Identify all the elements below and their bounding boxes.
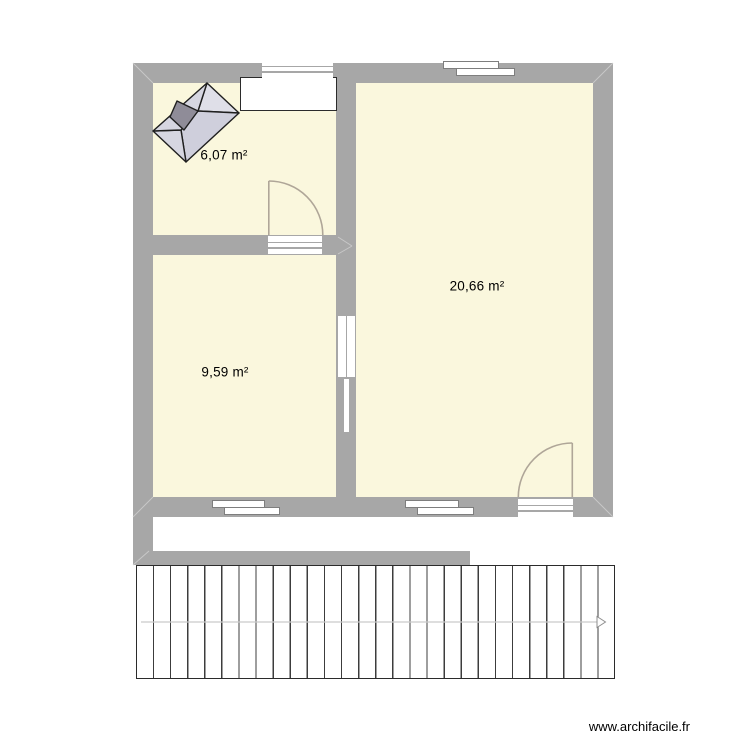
stairs[interactable] <box>136 565 615 679</box>
wall-left[interactable] <box>133 63 153 517</box>
plan-canvas: 6,07 m² 9,59 m² 20,66 m² <box>0 0 750 750</box>
sliding-window-bottom-room2[interactable] <box>212 499 281 517</box>
room-1-area-label: 6,07 m² <box>200 148 247 163</box>
room-2-area-label: 9,59 m² <box>201 365 248 380</box>
sliding-door-panel[interactable] <box>344 379 349 432</box>
window-panel <box>456 68 515 76</box>
furniture-rect[interactable] <box>240 77 337 111</box>
window-panel <box>224 507 280 515</box>
window-panel <box>417 507 474 515</box>
room-3-area-label: 20,66 m² <box>450 279 505 294</box>
door-opening-room1-room2[interactable] <box>268 236 322 254</box>
door-opening-room3-exterior[interactable] <box>518 499 573 517</box>
wall-exterior-stub-horizontal[interactable] <box>133 551 470 565</box>
window-top-room1[interactable] <box>262 60 333 78</box>
sliding-window-top-room3[interactable] <box>443 60 516 78</box>
wall-top[interactable] <box>133 63 613 83</box>
wall-divider-left-rooms[interactable] <box>133 235 356 255</box>
sliding-door-opening[interactable] <box>338 316 355 377</box>
wall-right[interactable] <box>593 63 613 517</box>
wall-exterior-stub-vertical[interactable] <box>133 517 153 553</box>
wall-middle-vertical[interactable] <box>336 63 356 517</box>
sliding-window-bottom-room3[interactable] <box>405 499 475 517</box>
watermark: www.archifacile.fr <box>589 719 690 734</box>
